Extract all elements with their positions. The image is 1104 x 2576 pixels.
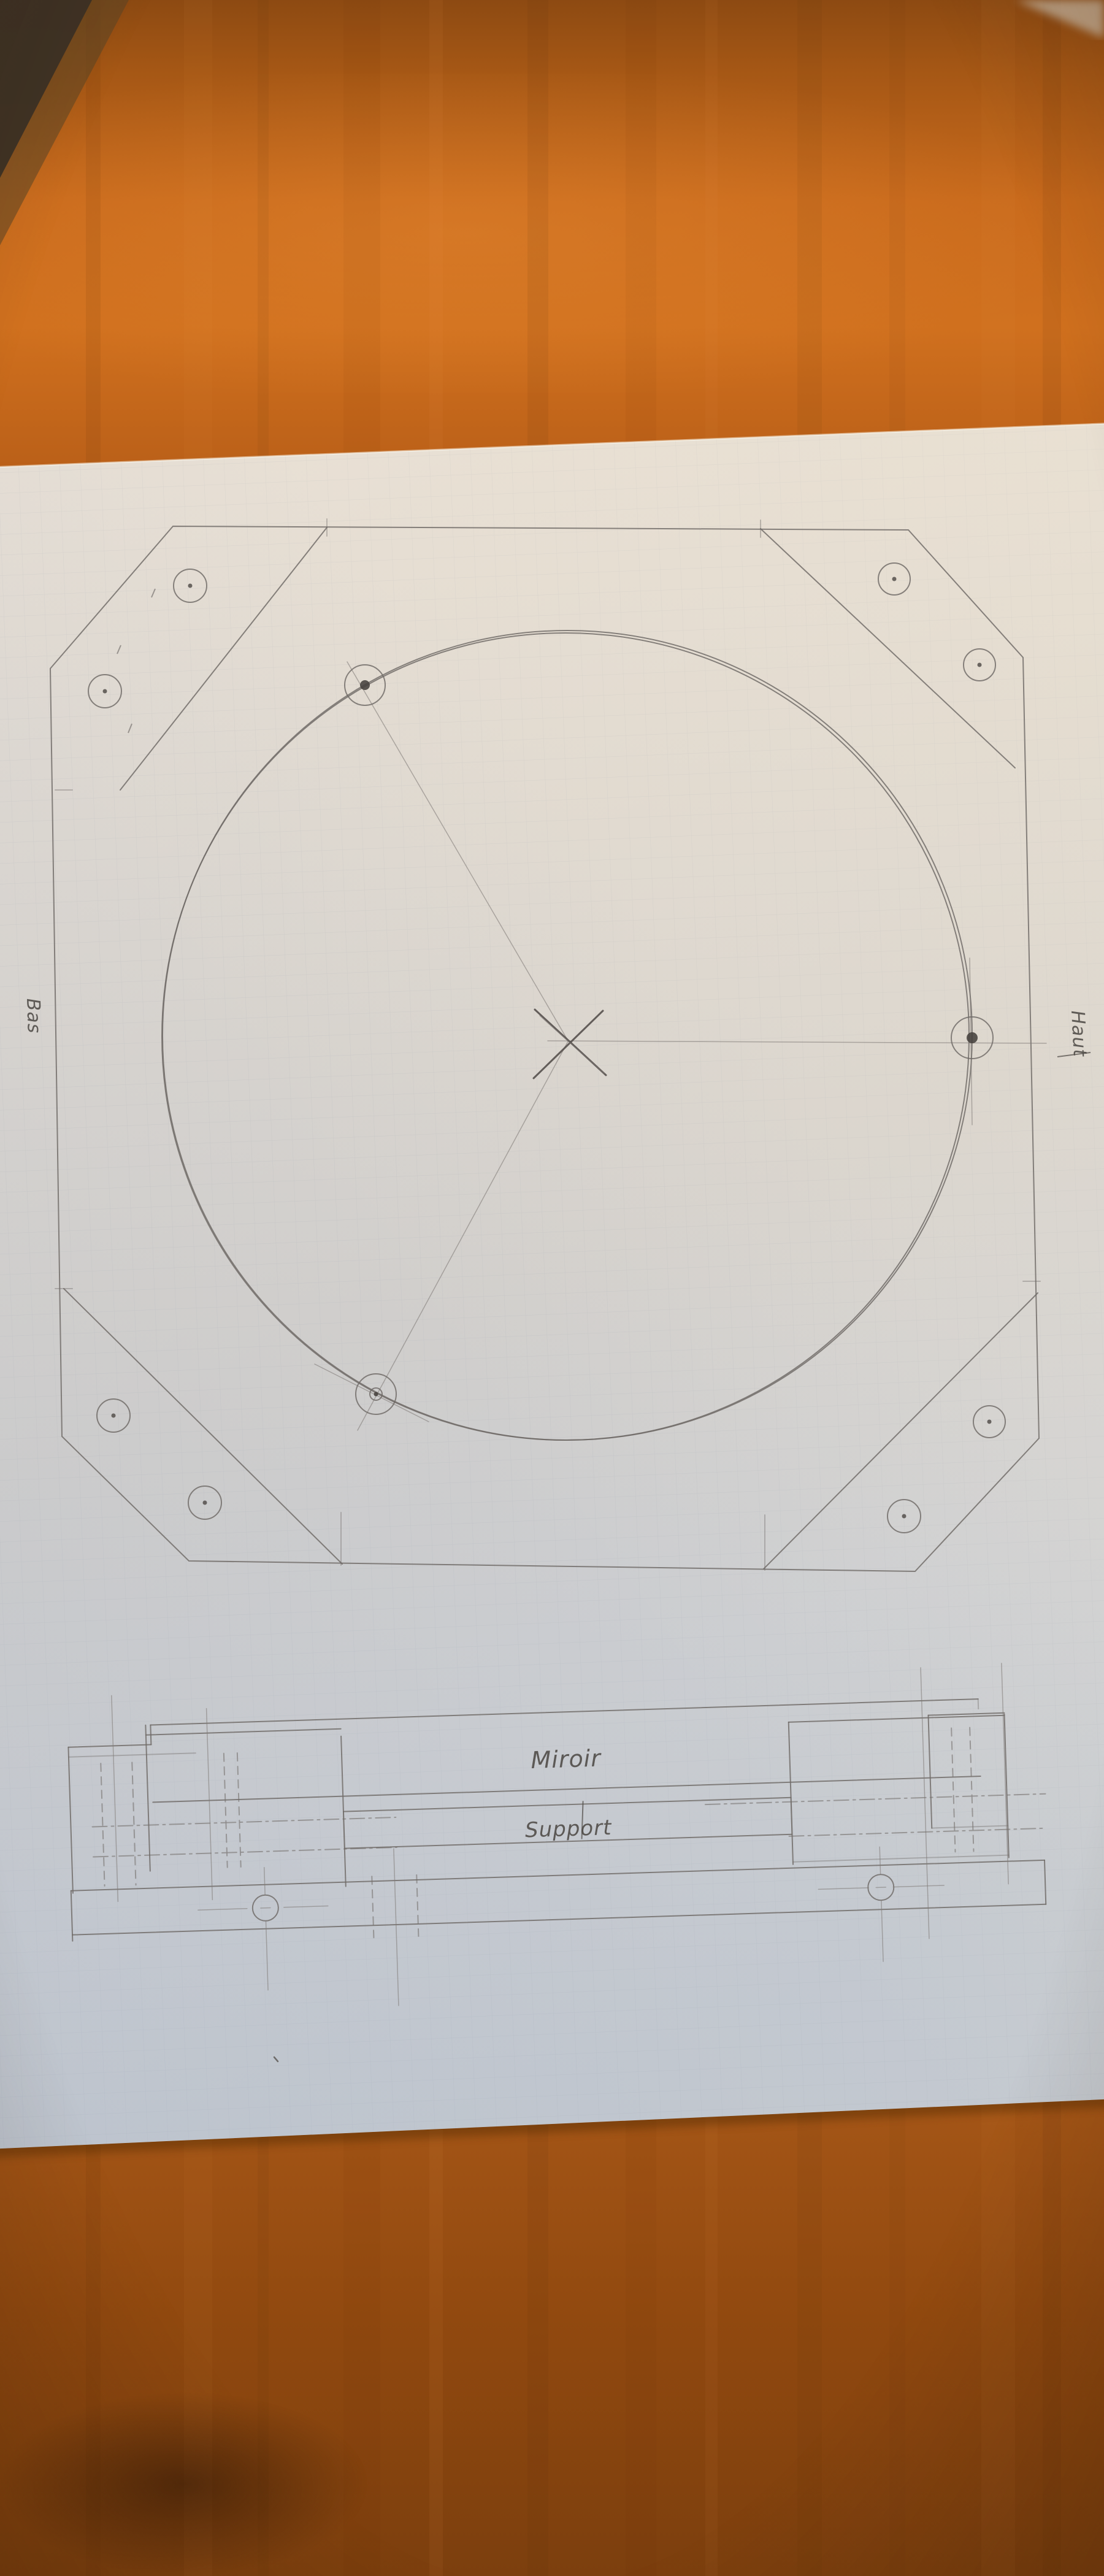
bottom-left-darkening <box>0 2392 368 2576</box>
photo-canvas: Bas Haut <box>0 0 1104 2576</box>
photo-vignette <box>0 0 1104 2576</box>
